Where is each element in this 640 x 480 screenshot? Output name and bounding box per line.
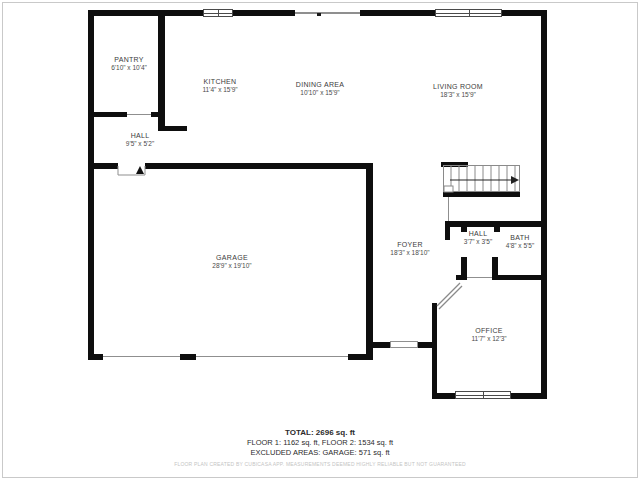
room-dims: 3'7" x 3'5"	[464, 238, 492, 246]
area-summary: TOTAL: 2696 sq. ft FLOOR 1: 1162 sq. ft,…	[0, 428, 640, 457]
stairs-treads	[451, 166, 515, 191]
room-name: DINING AREA	[296, 80, 344, 89]
total-area-text: TOTAL: 2696 sq. ft	[0, 428, 640, 438]
office-entry-diagonal-door-1	[437, 283, 460, 306]
room-name: BATH	[506, 233, 534, 242]
room-dims: 9'5" x 5'2"	[126, 140, 154, 148]
room-dims: 11'7" x 12'3"	[471, 335, 506, 343]
room-dims: 28'9" x 19'10"	[212, 262, 251, 270]
garage-door-swing-icon	[136, 166, 144, 174]
room-label-kitchen: KITCHEN 11'4" x 15'9"	[202, 77, 237, 94]
room-label-foyer: FOYER 18'3" x 18'10"	[390, 240, 429, 257]
room-dims: 18'3" x 15'9"	[433, 91, 483, 99]
room-label-office: OFFICE 11'7" x 12'3"	[471, 326, 506, 343]
room-label-dining: DINING AREA 10'10" x 15'9"	[296, 80, 344, 97]
stairs-landing	[444, 186, 453, 192]
room-dims: 11'4" x 15'9"	[202, 86, 237, 94]
stairs-outline	[444, 166, 520, 192]
room-dims: 18'3" x 18'10"	[390, 249, 429, 257]
room-name: LIVING ROOM	[433, 82, 483, 91]
room-name: HALL	[464, 229, 492, 238]
room-name: PANTRY	[111, 55, 147, 64]
room-dims: 4'8" x 5'5"	[506, 242, 534, 250]
room-label-pantry: PANTRY 6'10" x 10'4"	[111, 55, 147, 72]
disclaimer-text: FLOOR PLAN CREATED BY CUBICASA APP. MEAS…	[0, 461, 640, 467]
room-label-hall-upper: HALL 9'5" x 5'2"	[126, 131, 154, 148]
room-label-hall-lower: HALL 3'7" x 3'5"	[464, 229, 492, 246]
room-name: KITCHEN	[202, 77, 237, 86]
floorplan-page: PANTRY 6'10" x 10'4" KITCHEN 11'4" x 15'…	[0, 0, 640, 480]
room-name: HALL	[126, 131, 154, 140]
room-dims: 10'10" x 15'9"	[296, 89, 344, 97]
room-name: GARAGE	[212, 253, 251, 262]
room-label-bath: BATH 4'8" x 5'5"	[506, 233, 534, 250]
floorplan-symbols-layer	[0, 0, 640, 480]
room-name: FOYER	[390, 240, 429, 249]
room-name: OFFICE	[471, 326, 506, 335]
excluded-area-text: EXCLUDED AREAS: GARAGE: 571 sq. ft	[0, 448, 640, 458]
room-label-living: LIVING ROOM 18'3" x 15'9"	[433, 82, 483, 99]
room-dims: 6'10" x 10'4"	[111, 64, 147, 72]
office-entry-diagonal-door-2	[439, 286, 462, 309]
floors-area-text: FLOOR 1: 1162 sq. ft, FLOOR 2: 1534 sq. …	[0, 438, 640, 448]
room-label-garage: GARAGE 28'9" x 19'10"	[212, 253, 251, 270]
